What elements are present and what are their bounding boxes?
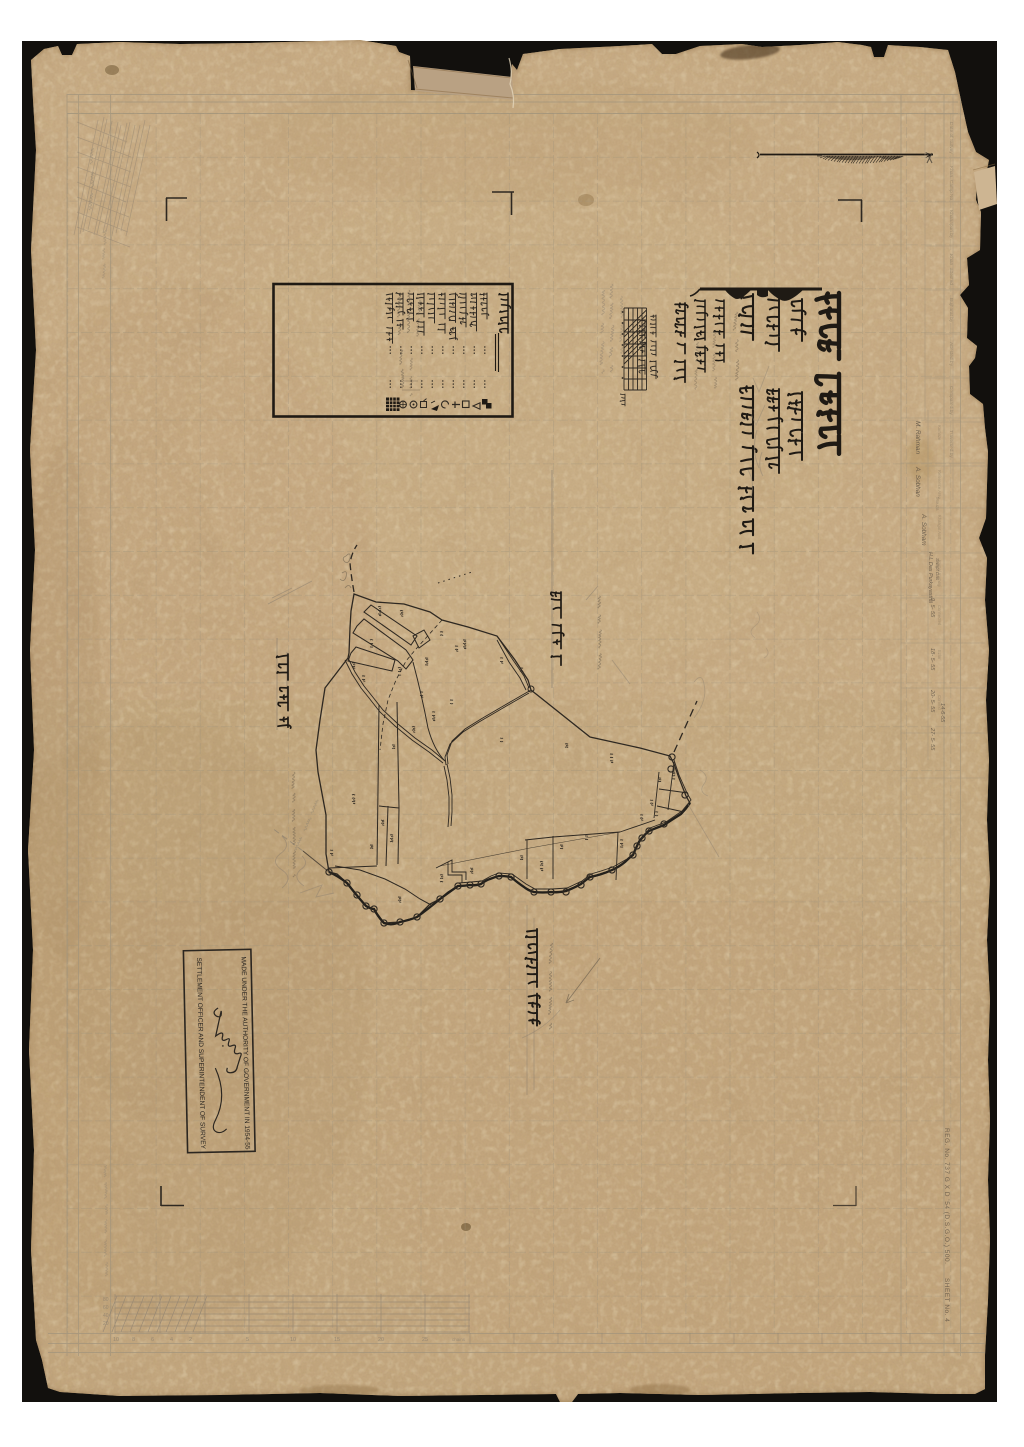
svg-text:20: 20 <box>378 1337 384 1343</box>
svg-text:Khanapuri by: Khanapuri by <box>948 210 954 239</box>
svg-text:15: 15 <box>334 1337 340 1343</box>
svg-text:REG. No. 737 G X D ’54 (D.S.G.: REG. No. 737 G X D ’54 (D.S.G.O.) 500. <box>943 1128 950 1264</box>
svg-text:Mouza: Mouza <box>935 497 940 511</box>
svg-text:80: 80 <box>103 1297 109 1303</box>
svg-text:14-6-55: 14-6-55 <box>939 703 945 723</box>
svg-text:Khan. attested: Khan. attested <box>948 254 954 285</box>
svg-text:Compared by: Compared by <box>948 386 954 415</box>
svg-text:4: 4 <box>170 1337 173 1343</box>
svg-text:Reference Area: Reference Area <box>937 470 942 500</box>
svg-text:10: 10 <box>290 1337 296 1343</box>
svg-text:9- 5- 55: 9- 5- 55 <box>929 598 935 618</box>
svg-text:27- 5- 55: 27- 5- 55 <box>929 727 935 751</box>
svg-text:18- 5- 55: 18- 5- 55 <box>929 648 935 671</box>
svg-text:Khan. Camp No: Khan. Camp No <box>948 166 954 200</box>
svg-text:M. Rahman: M. Rahman <box>914 421 921 454</box>
svg-text:20: 20 <box>103 1321 109 1327</box>
svg-text:6: 6 <box>151 1337 154 1343</box>
svg-text:8: 8 <box>132 1337 135 1343</box>
svg-text:Khasgat Asst: Khasgat Asst <box>937 515 942 540</box>
svg-text:Date of Survey: Date of Survey <box>948 122 954 154</box>
svg-text:25: 25 <box>422 1337 428 1343</box>
svg-text:5: 5 <box>246 1337 249 1343</box>
svg-text:Attested by: Attested by <box>948 342 954 367</box>
svg-text:A. Sobhan: A. Sobhan <box>914 466 921 497</box>
svg-text:Bujharat by: Bujharat by <box>948 298 954 323</box>
svg-text:Ezlar: Ezlar <box>937 650 942 660</box>
svg-text:Connected: Connected <box>937 605 942 626</box>
svg-text:40: 40 <box>103 1313 109 1319</box>
svg-text:H.L.Das Purkayastha: H.L.Das Purkayastha <box>927 552 933 603</box>
svg-text:A. Sobham: A. Sobham <box>920 513 927 546</box>
svg-text:chains: chains <box>452 1337 466 1342</box>
svg-text:SHEET No. 4: SHEET No. 4 <box>943 1278 950 1322</box>
svg-text:20- 5- 55: 20- 5- 55 <box>929 689 935 713</box>
svg-text:Swapt Das: Swapt Das <box>935 558 940 581</box>
svg-text:10: 10 <box>113 1337 119 1343</box>
svg-text:2: 2 <box>189 1337 192 1343</box>
svg-text:60: 60 <box>103 1305 109 1311</box>
svg-text:Traversed by: Traversed by <box>948 430 954 458</box>
svg-text:Kamaze: Kamaze <box>937 425 942 441</box>
